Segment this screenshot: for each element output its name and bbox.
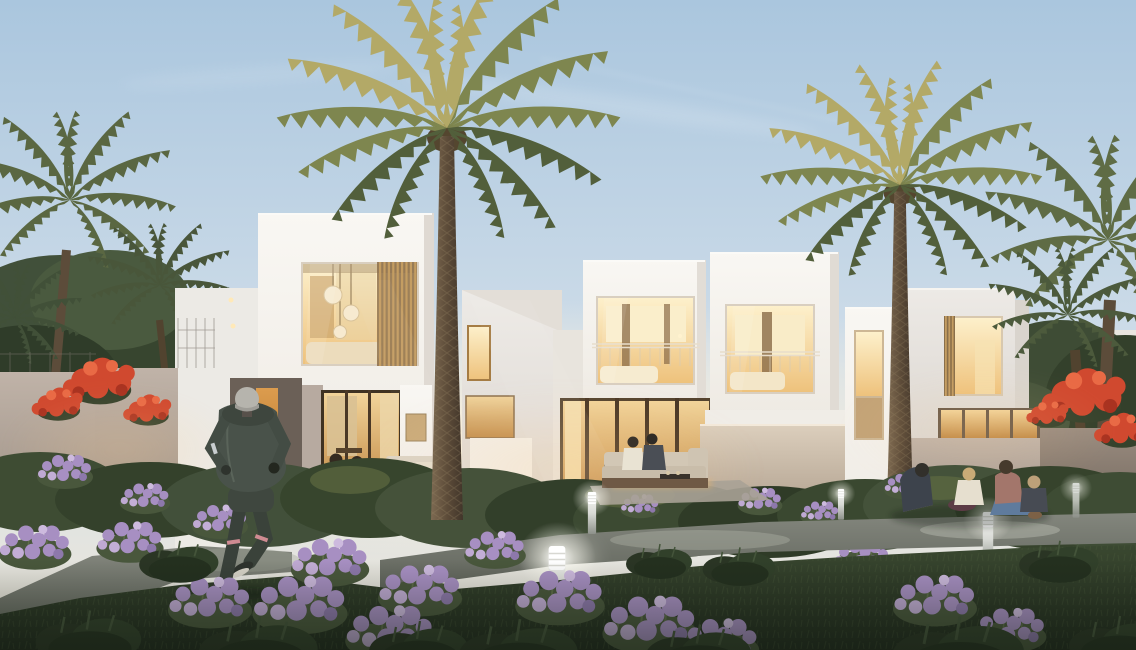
pendant-lamp	[334, 326, 347, 339]
sofa-base	[602, 478, 708, 488]
architectural-render	[0, 0, 1136, 650]
bottom-vignette	[0, 560, 1136, 650]
dining-table	[336, 448, 362, 453]
render-canvas	[0, 0, 1136, 650]
bedroom-window-b	[720, 304, 820, 394]
jogger-glove	[269, 463, 280, 474]
wall-sconce	[229, 298, 234, 303]
wall-sconce	[231, 324, 236, 329]
pendant-lamp	[343, 305, 359, 321]
stair-window-tall	[856, 332, 882, 396]
bedroom-window-a	[592, 296, 700, 385]
wall-lamp	[678, 334, 682, 338]
coffee-table	[660, 474, 690, 479]
